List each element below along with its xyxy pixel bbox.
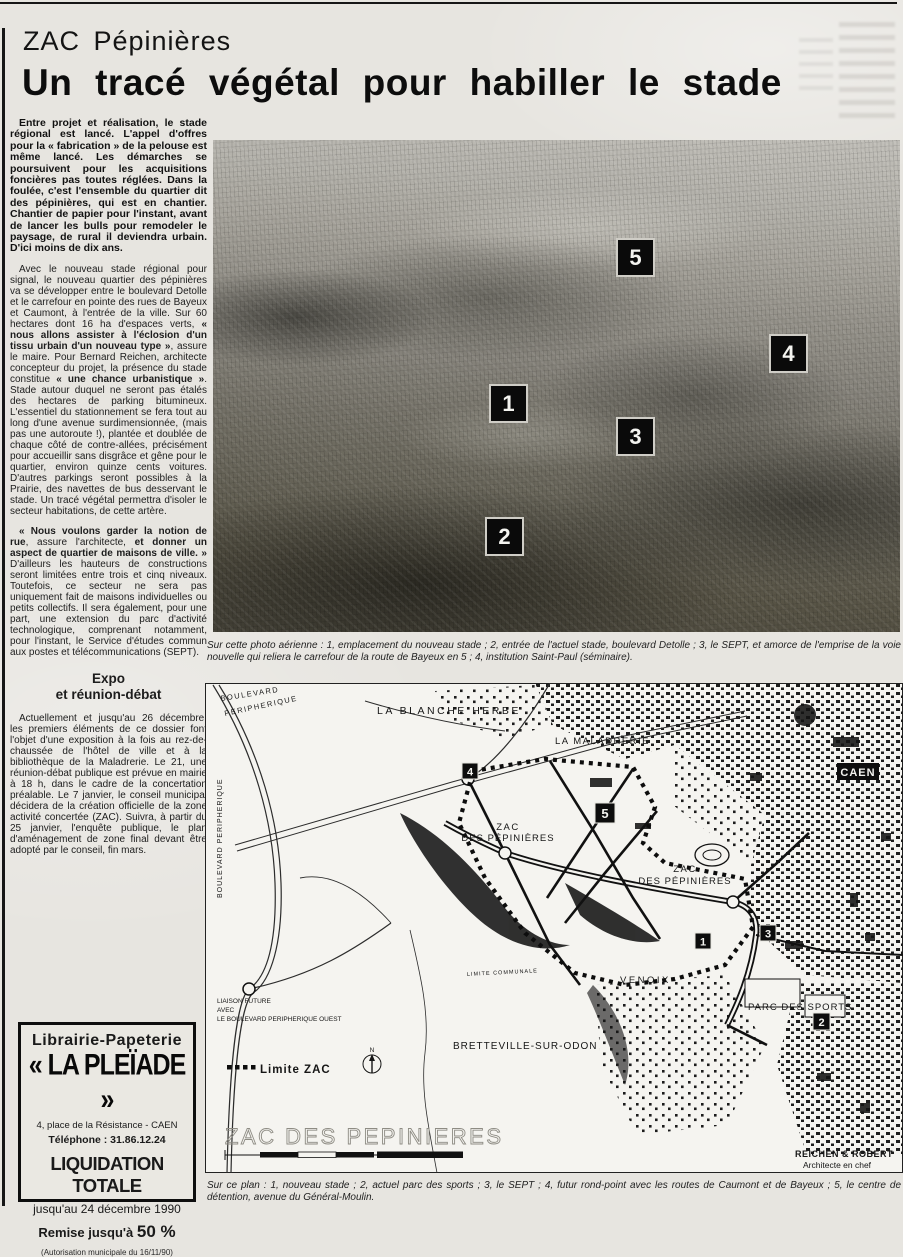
map-big-title: ZAC DES PEPINIERES xyxy=(225,1124,504,1149)
photo-caption: Sur cette photo aérienne : 1, emplacemen… xyxy=(207,640,901,663)
zac-map: BOULEVARD PERIPHERIQUE BOULEVARD PERIPHE… xyxy=(205,683,903,1173)
map-label-zac2-line2: DES PÉPINIÈRES xyxy=(638,876,731,887)
photo-marker-3: 3 xyxy=(616,417,655,456)
map-label-zac1-line2: DES PÉPINIÈRES xyxy=(461,833,554,844)
article-column: Entre projet et réalisation, le stade ré… xyxy=(10,118,207,865)
compass-n-label: N xyxy=(370,1047,375,1054)
top-rule xyxy=(0,2,897,4)
ink-bleedthrough xyxy=(839,22,895,118)
ink-bleedthrough xyxy=(799,30,833,90)
map-credit-architect: REICHEN & ROBERT xyxy=(795,1149,893,1159)
photo-marker-5: 5 xyxy=(616,238,655,277)
ad-address: 4, place de la Résistance - CAEN xyxy=(21,1120,193,1131)
map-label-la-blanche-herbe: LA BLANCHE HERBE xyxy=(377,705,521,717)
map-label-liaison-3: LE BOULEVARD PERIPHERIQUE OUEST xyxy=(217,1016,342,1023)
map-marker-4: 4 xyxy=(467,767,474,779)
map-label-liaison-2: AVEC xyxy=(217,1007,235,1014)
map-marker-5: 5 xyxy=(601,806,608,821)
article-paragraph: Avec le nouveau stade régional pour sign… xyxy=(10,264,207,517)
photo-marker-2: 2 xyxy=(485,517,524,556)
aerial-photo: 5 4 1 3 2 xyxy=(213,140,900,632)
article-subhead: Expo et réunion-débat xyxy=(10,671,207,703)
map-label-liaison-1: LIAISON FUTURE xyxy=(217,998,271,1005)
article-paragraph-lead: Entre projet et réalisation, le stade ré… xyxy=(10,118,207,255)
map-legend-limite-zac: Limite ZAC xyxy=(260,1064,331,1076)
map-label-zac2-line1: ZAC xyxy=(673,864,697,875)
ad-authorization: (Autorisation municipale du 16/11/90) xyxy=(21,1248,193,1257)
ad-shop-name: « LA PLEÏADE » xyxy=(21,1049,193,1117)
map-credit-architect-2: Architecte en chef xyxy=(803,1160,872,1170)
ad-discount-value: 50 % xyxy=(137,1222,176,1241)
ad-liquidation: LIQUIDATION TOTALE xyxy=(21,1153,193,1197)
photo-marker-4: 4 xyxy=(769,334,808,373)
map-label-zac1-line1: ZAC xyxy=(496,822,520,833)
ad-phone: Téléphone : 31.86.12.24 xyxy=(21,1134,193,1146)
advertisement: Librairie-Papeterie « LA PLEÏADE » 4, pl… xyxy=(18,1022,196,1202)
map-label-caen: CAEN xyxy=(840,767,875,779)
map-marker-3: 3 xyxy=(765,929,771,941)
ad-until-date: jusqu'au 24 décembre 1990 xyxy=(21,1202,193,1216)
article-paragraph: « Nous voulons garder la notion de rue, … xyxy=(10,526,207,658)
page-title: Un tracé végétal pour habiller le stade xyxy=(22,62,782,104)
map-label-venoix: VENOIX xyxy=(620,975,671,986)
map-label-parc-des-sports: PARC DES SPORTS xyxy=(748,1002,852,1013)
left-column-rule xyxy=(2,28,5,1206)
map-label-la-maladrerie: LA MALADRERIE xyxy=(555,736,650,747)
newspaper-page: ZAC Pépinières Un tracé végétal pour hab… xyxy=(0,0,903,1212)
map-label-bretteville: BRETTEVILLE-SUR-ODON xyxy=(453,1041,597,1052)
kicker: ZAC Pépinières xyxy=(23,26,231,57)
photo-marker-1: 1 xyxy=(489,384,528,423)
map-caption: Sur ce plan : 1, nouveau stade ; 2, actu… xyxy=(207,1180,901,1203)
map-marker-2: 2 xyxy=(818,1017,824,1029)
ad-shop-type: Librairie-Papeterie xyxy=(21,1032,193,1050)
map-marker-1: 1 xyxy=(700,937,706,949)
article-paragraph: Actuellement et jusqu'au 26 décembre, le… xyxy=(10,713,207,856)
ad-discount: Remise jusqu'à 50 % xyxy=(21,1222,193,1242)
map-label-boulevard-peripherique: BOULEVARD PERIPHERIQUE xyxy=(217,778,224,898)
